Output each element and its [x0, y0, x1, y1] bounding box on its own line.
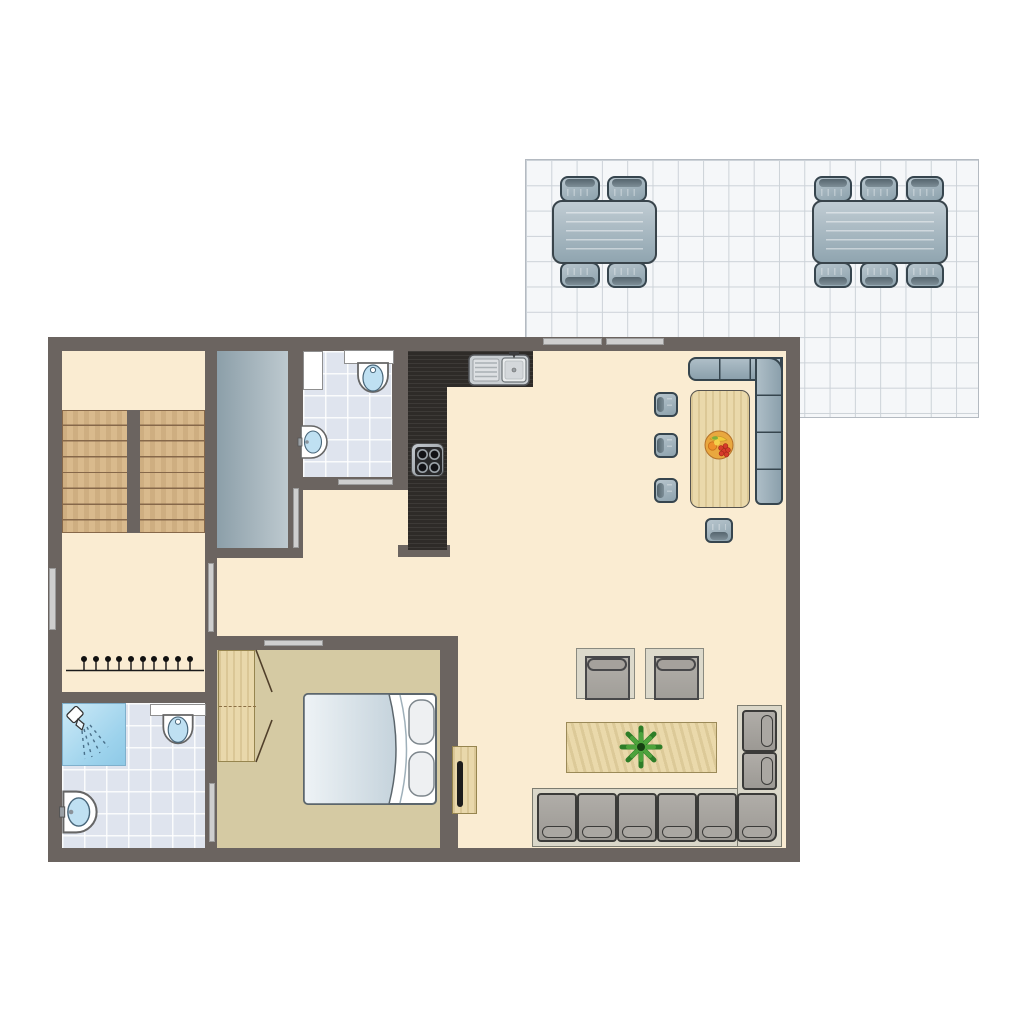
void-room-floor	[217, 351, 288, 548]
wall-bedroom-top	[205, 636, 458, 650]
sofa-cushion	[577, 793, 617, 842]
sofa-cushion	[742, 752, 777, 790]
burner-icon	[417, 449, 428, 460]
terrace-chair-icon	[906, 262, 944, 288]
washbasin	[62, 789, 98, 835]
double-bed	[303, 693, 437, 805]
door-bathroom	[209, 783, 215, 842]
dining-chair	[654, 392, 678, 417]
terrace-chair-icon	[814, 176, 852, 202]
washbasin	[300, 424, 328, 460]
sofa-cushion	[742, 710, 777, 752]
burner-icon	[429, 462, 440, 473]
window-left	[49, 568, 56, 630]
door-toilet-room	[338, 479, 393, 485]
dining-chair	[654, 433, 678, 458]
sofa-cushion	[697, 793, 737, 842]
window-top-1	[543, 338, 602, 345]
wall-under-void	[205, 548, 303, 558]
terrace-chair-icon	[560, 176, 600, 202]
shower-head-icon	[64, 705, 124, 763]
door-hall	[208, 563, 214, 632]
terrace-chair-icon	[860, 262, 898, 288]
terrace-chair-icon	[906, 176, 944, 202]
sofa-cushion	[657, 793, 697, 842]
coat-rack	[66, 654, 204, 672]
floor-plan	[0, 0, 1024, 1024]
burner-icon	[417, 462, 428, 473]
terrace-chair-icon	[607, 176, 647, 202]
cooktop	[411, 443, 444, 477]
toilet-room-cabinet	[303, 351, 323, 390]
staircase-divider	[127, 410, 140, 533]
tv-cabinet	[452, 746, 477, 814]
sofa-corner-cushion	[737, 793, 777, 842]
wardrobe	[218, 650, 255, 762]
terrace-chair-icon	[814, 262, 852, 288]
wall-toilet-right	[392, 351, 408, 490]
toilet-bowl	[355, 361, 391, 407]
terrace-chair-icon	[860, 176, 898, 202]
pillow	[409, 752, 434, 796]
sofa-cushion	[537, 793, 577, 842]
pillow	[409, 700, 434, 744]
tv-icon	[457, 761, 463, 807]
dining-chair	[705, 518, 733, 543]
terrace-chair-icon	[607, 262, 647, 288]
armchair	[645, 648, 704, 699]
door-bedroom	[264, 640, 323, 646]
burner-icon	[429, 449, 440, 460]
dining-chair	[654, 478, 678, 503]
terrace-table-6	[812, 200, 948, 264]
terrace-table-4	[552, 200, 657, 264]
wardrobe-doors	[255, 648, 273, 764]
plant-icon	[619, 725, 663, 769]
armchair	[576, 648, 635, 699]
fruit-bowl-icon	[704, 430, 734, 460]
door-void-room	[293, 488, 299, 548]
kitchen-sink	[468, 352, 530, 386]
window-top-2	[606, 338, 664, 345]
terrace-chair-icon	[560, 262, 600, 288]
wall-hall-bottom	[48, 692, 217, 703]
toilet-bowl	[160, 713, 196, 758]
sofa-cushion	[617, 793, 657, 842]
dining-corner-bench	[755, 357, 783, 505]
